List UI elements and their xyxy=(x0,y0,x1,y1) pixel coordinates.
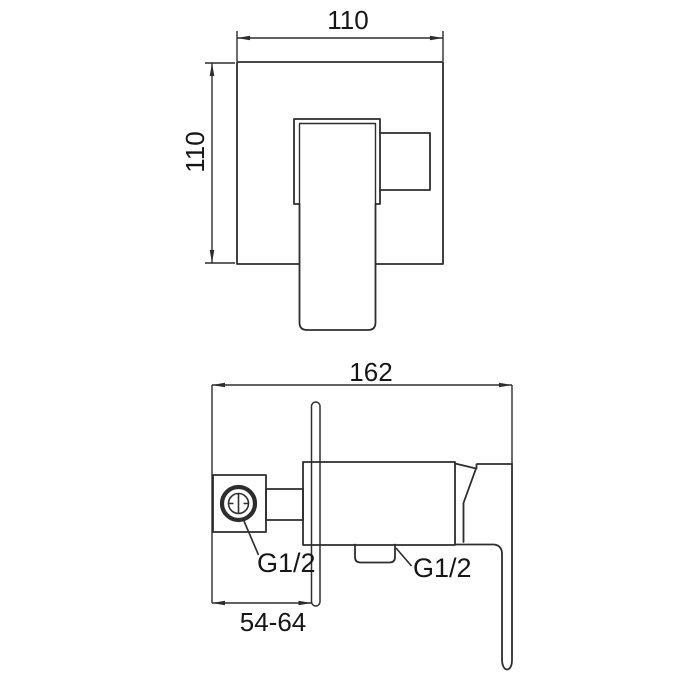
lever-handle-front-outline xyxy=(300,204,376,330)
front-view: 110 110 xyxy=(180,5,443,330)
dim-width-extension-lines xyxy=(237,31,443,61)
inlet-connector xyxy=(266,489,303,520)
dim-wall-range-label: 54-64 xyxy=(240,607,307,637)
lever-front-edge xyxy=(464,469,477,543)
dim-height-label: 110 xyxy=(180,131,210,172)
lever-right-edge-and-tip xyxy=(502,464,512,670)
dim-depth: 162 xyxy=(212,357,512,464)
label-outlet-thread: G1/2 xyxy=(396,548,472,583)
arrowhead-bottom xyxy=(210,250,215,263)
arrowhead-right xyxy=(499,383,512,388)
dim-depth-label: 162 xyxy=(349,357,392,387)
dim-width-label: 110 xyxy=(327,5,368,35)
side-knob-outline xyxy=(380,133,430,190)
technical-drawing-page: 110 110 xyxy=(0,0,700,700)
outlet-thread-leader xyxy=(396,548,412,566)
outlet-stub xyxy=(355,545,395,563)
mixer-valve-drawing: 110 110 xyxy=(0,0,700,700)
arrowhead-top xyxy=(210,63,215,76)
side-view: 162 G1/2 G1/2 54-64 xyxy=(212,357,512,670)
escutcheon-inner-outline xyxy=(300,124,376,205)
arrowhead-left xyxy=(212,383,225,388)
outlet-thread-label: G1/2 xyxy=(413,553,472,583)
inlet-thread-label: G1/2 xyxy=(257,548,316,578)
dim-wall-range: 54-64 xyxy=(212,601,312,637)
wall-plate-outline xyxy=(237,62,443,264)
arrowhead-left xyxy=(212,601,225,606)
arrowhead-right xyxy=(299,601,312,606)
escutcheon-outer-outline xyxy=(294,119,380,204)
dim-width: 110 xyxy=(237,5,443,61)
lever-hub-slant xyxy=(455,464,477,469)
dim-height: 110 xyxy=(180,63,235,263)
label-inlet-thread: G1/2 xyxy=(244,521,316,578)
arrowhead-right xyxy=(430,36,443,41)
arrowhead-left xyxy=(237,36,250,41)
valve-body xyxy=(303,462,455,545)
